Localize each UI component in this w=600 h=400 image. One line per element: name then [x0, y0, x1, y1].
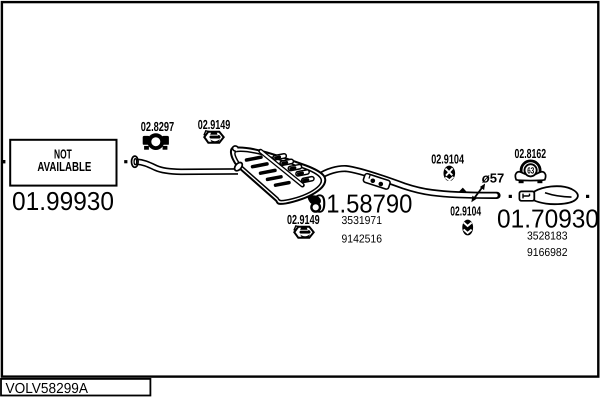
- svg-text:3531971: 3531971: [342, 215, 383, 227]
- svg-text:02.8297: 02.8297: [141, 119, 174, 134]
- svg-text:AVAILABLE: AVAILABLE: [37, 159, 91, 174]
- svg-text:3528183: 3528183: [527, 230, 568, 242]
- svg-text:9142516: 9142516: [342, 233, 383, 245]
- svg-text:9166982: 9166982: [527, 247, 568, 259]
- svg-text:01.99930: 01.99930: [12, 186, 114, 216]
- svg-text:02.9104: 02.9104: [431, 152, 464, 167]
- svg-text:02.9104: 02.9104: [450, 203, 481, 218]
- svg-text:02.9149: 02.9149: [287, 212, 320, 227]
- svg-text:VOLV58299A: VOLV58299A: [6, 381, 89, 397]
- svg-text:02.8162: 02.8162: [515, 146, 547, 161]
- svg-text:02.9149: 02.9149: [198, 117, 231, 132]
- svg-text:ø57: ø57: [482, 171, 504, 186]
- svg-text:01.70930: 01.70930: [497, 203, 599, 233]
- svg-text:63: 63: [527, 165, 534, 175]
